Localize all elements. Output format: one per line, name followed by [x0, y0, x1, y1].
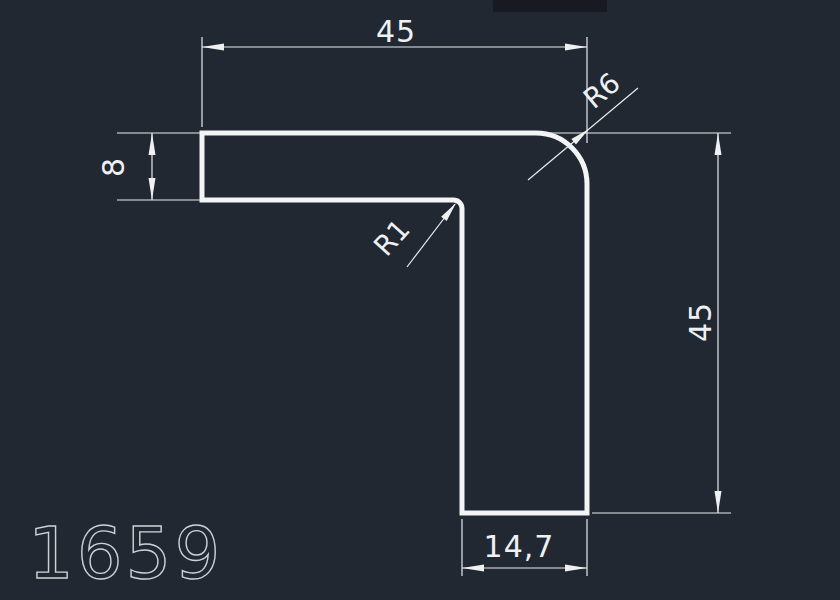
- drawing-background: [0, 0, 840, 600]
- cad-drawing-canvas: 45 8 45 14,7 R6 R1 1659: [0, 0, 840, 600]
- part-number-label: 1659: [28, 511, 223, 595]
- dim-top-width-label: 45: [376, 14, 416, 49]
- top-edge-artifact: [493, 0, 607, 12]
- dim-right-height-label: 45: [683, 302, 718, 342]
- dim-bottom-width-label: 14,7: [484, 529, 555, 564]
- dim-left-thickness-label: 8: [96, 157, 131, 177]
